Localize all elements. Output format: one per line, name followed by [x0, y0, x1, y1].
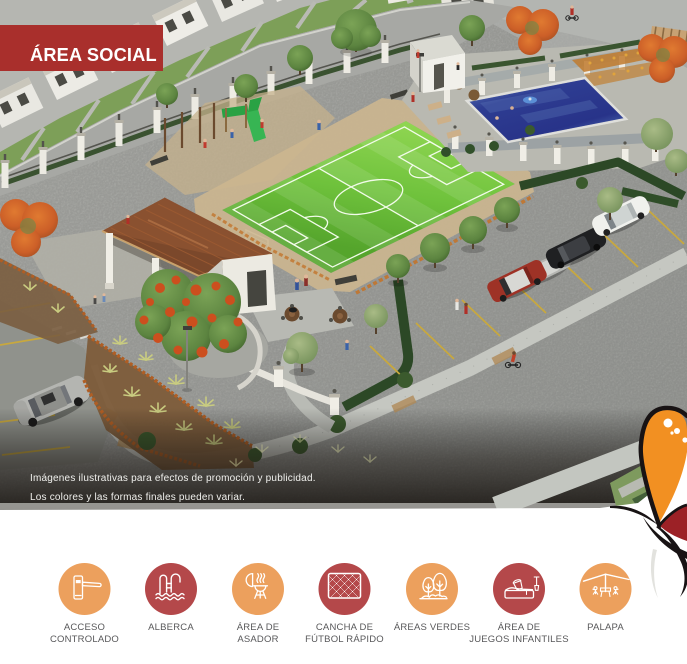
- svg-text:CANCHA DE: CANCHA DE: [316, 622, 373, 633]
- svg-text:ÁREA DE: ÁREA DE: [237, 622, 280, 633]
- svg-text:PALAPA: PALAPA: [587, 622, 624, 633]
- svg-text:CONTROLADO: CONTROLADO: [50, 634, 119, 645]
- svg-text:FÚTBOL RÁPIDO: FÚTBOL RÁPIDO: [305, 634, 384, 645]
- svg-text:ASADOR: ASADOR: [237, 634, 278, 645]
- svg-text:Los colores y las formas final: Los colores y las formas finales pueden …: [30, 492, 245, 503]
- svg-text:ÁREA SOCIAL: ÁREA SOCIAL: [30, 44, 157, 65]
- svg-text:Imágenes ilustrativas para efe: Imágenes ilustrativas para efectos de pr…: [30, 473, 316, 484]
- svg-text:ÁREA DE: ÁREA DE: [498, 622, 541, 633]
- svg-text:ÁREAS VERDES: ÁREAS VERDES: [394, 622, 470, 633]
- svg-text:ALBERCA: ALBERCA: [148, 622, 194, 633]
- svg-text:ACCESO: ACCESO: [64, 622, 105, 633]
- svg-text:JUEGOS INFANTILES: JUEGOS INFANTILES: [469, 634, 568, 645]
